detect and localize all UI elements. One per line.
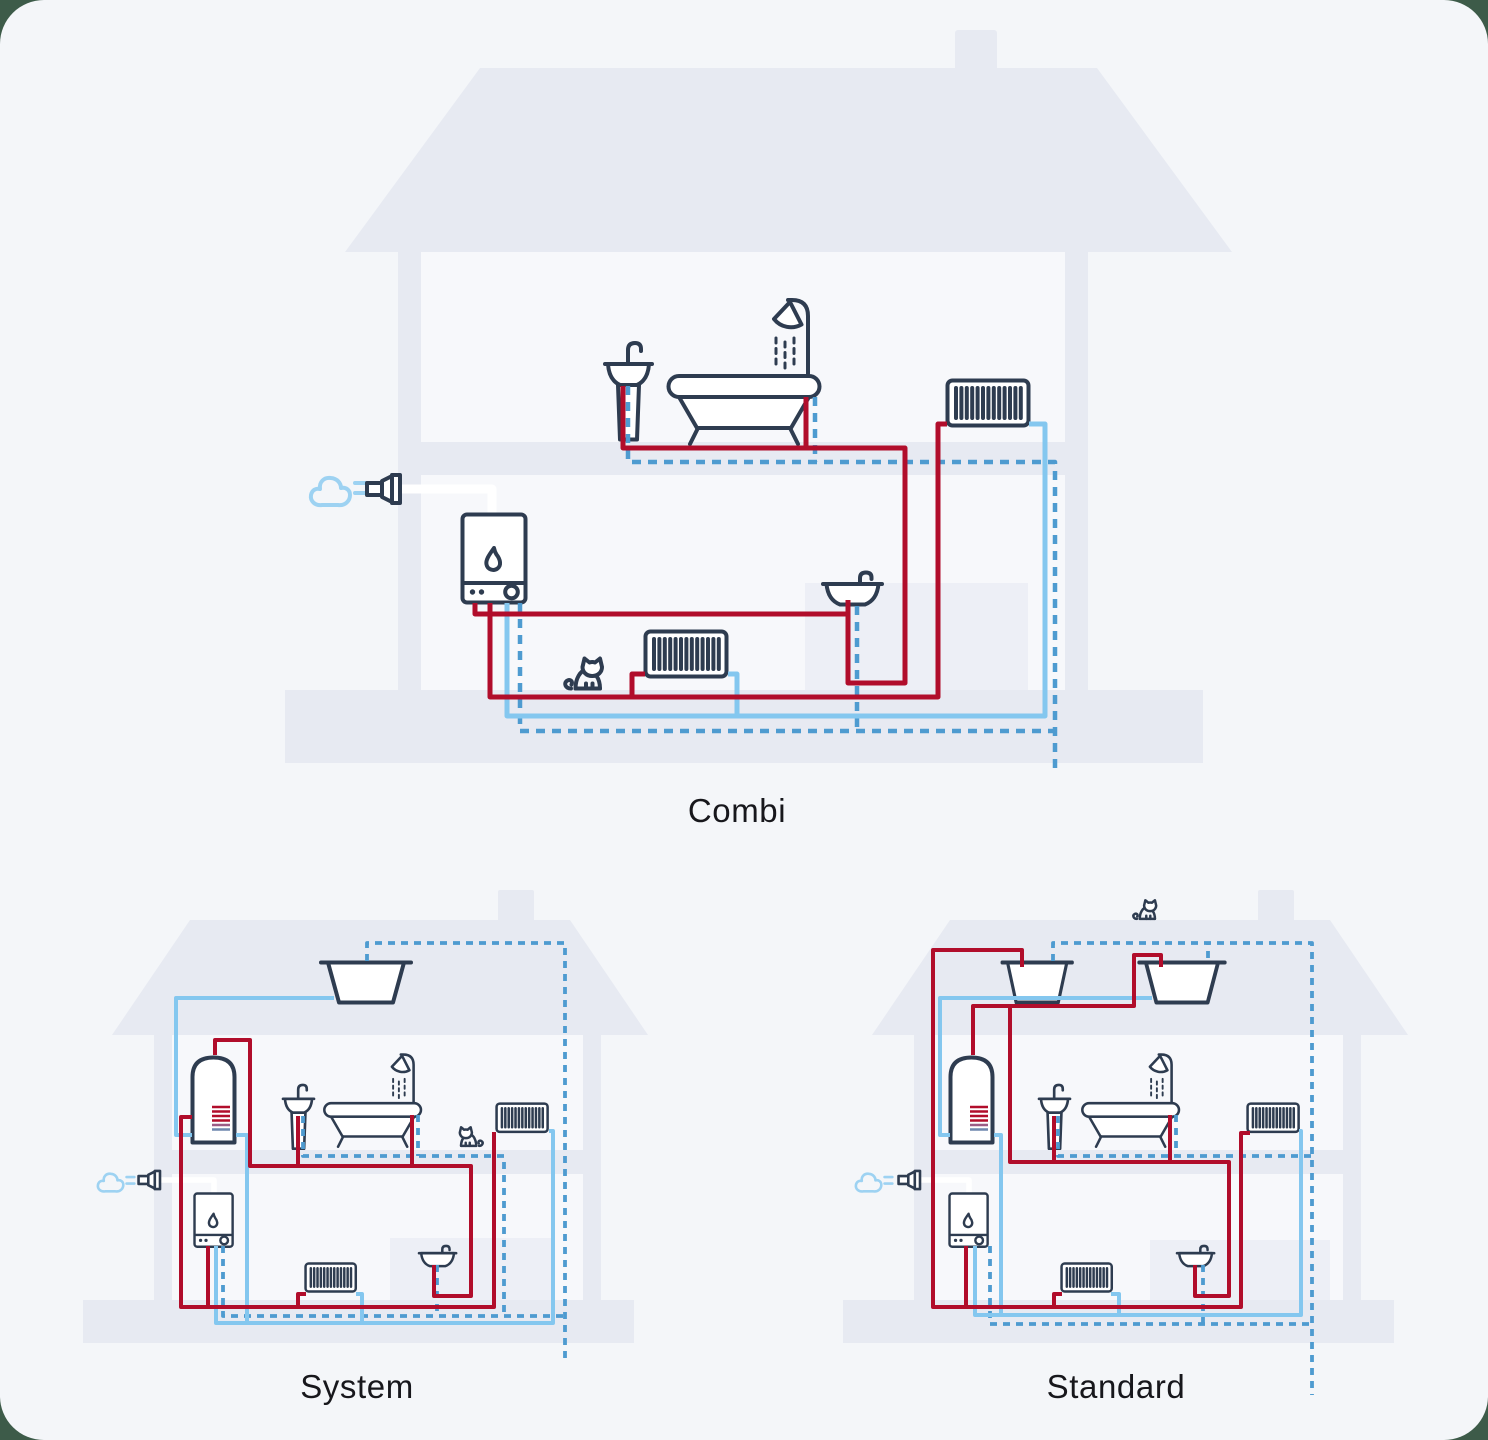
standard-right-wall (1343, 1032, 1361, 1300)
boiler-icon (950, 1194, 988, 1247)
radiator-downstairs-icon (306, 1264, 356, 1292)
radiator-upstairs-icon (497, 1104, 548, 1132)
flue-terminal-icon (367, 475, 400, 503)
combi-chimney (955, 30, 997, 72)
combi-ground (285, 690, 1203, 763)
steam-icon (856, 1174, 892, 1192)
boiler-types-diagram: Combi (0, 0, 1488, 1440)
radiator-downstairs-icon (646, 632, 727, 677)
cat-on-roof-icon (1133, 900, 1156, 919)
flue-terminal-icon (899, 1171, 920, 1189)
standard-left-wall (914, 1032, 932, 1300)
hot-water-cylinder-icon (951, 1058, 993, 1143)
radiator-downstairs-icon (1062, 1264, 1112, 1292)
combi-left-wall (398, 246, 421, 690)
combi-label: Combi (688, 792, 786, 829)
standard-label: Standard (1047, 1368, 1186, 1405)
boiler-icon (195, 1194, 233, 1247)
combi-right-wall (1065, 246, 1088, 690)
system-label: System (300, 1368, 414, 1405)
boiler-icon (463, 515, 526, 603)
flue-terminal-icon (139, 1171, 160, 1189)
steam-icon (98, 1174, 134, 1192)
system-right-wall (583, 1032, 601, 1300)
steam-icon (311, 478, 367, 505)
standard-chimney (1258, 890, 1294, 924)
house-combi: Combi (285, 30, 1232, 829)
house-system: System (83, 890, 648, 1405)
house-standard: Standard (843, 890, 1408, 1405)
hot-water-cylinder-icon (193, 1058, 235, 1143)
system-chimney (498, 890, 534, 924)
system-left-wall (154, 1032, 172, 1300)
radiator-upstairs-icon (948, 381, 1029, 426)
standard-roof (872, 920, 1408, 1035)
system-floor-slab (172, 1150, 583, 1174)
combi-roof (345, 68, 1232, 252)
radiator-upstairs-icon (1248, 1104, 1299, 1132)
illustration-card: Combi (0, 0, 1488, 1440)
